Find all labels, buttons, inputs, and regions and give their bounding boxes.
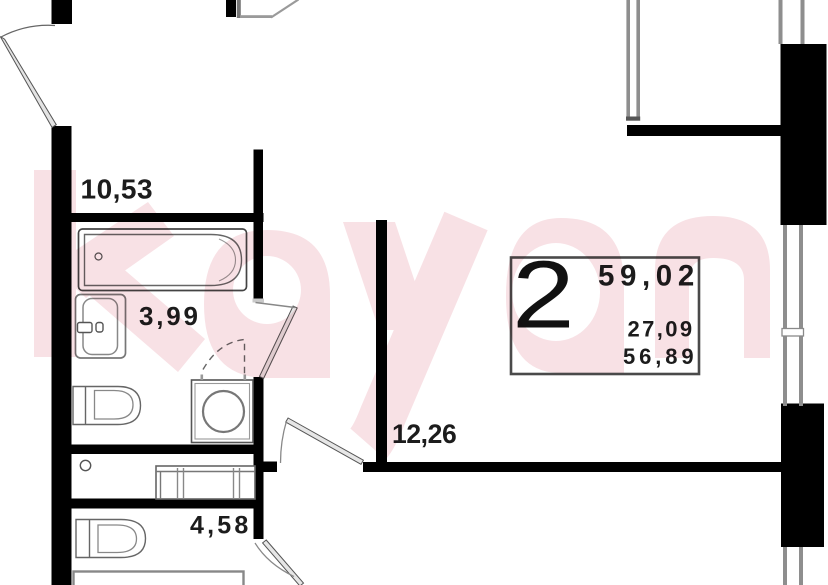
svg-text:10,53: 10,53	[81, 174, 154, 205]
svg-text:4,58: 4,58	[190, 512, 251, 540]
